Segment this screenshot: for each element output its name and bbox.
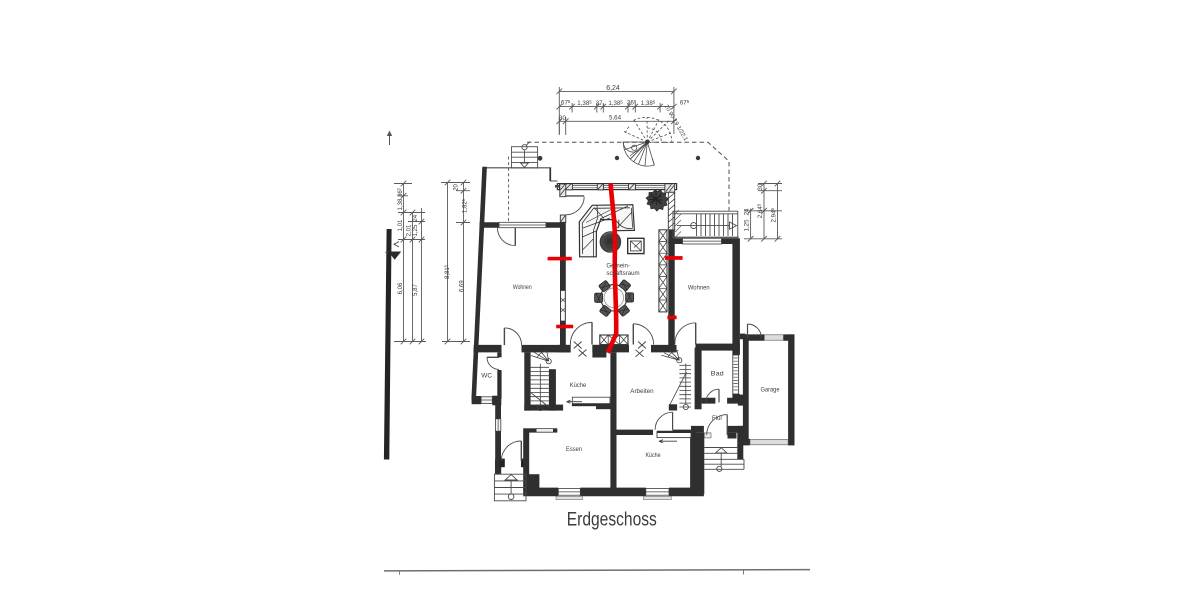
svg-text:1,25: 1,25 [413, 224, 419, 236]
svg-text:Flur: Flur [712, 415, 723, 422]
svg-text:WC: WC [481, 372, 492, 379]
svg-text:5,64: 5,64 [609, 115, 622, 122]
svg-text:24: 24 [413, 214, 419, 221]
svg-text:1,825: 1,825 [461, 198, 469, 213]
svg-text:schaftsraum: schaftsraum [606, 270, 639, 277]
svg-text:Bad: Bad [711, 371, 724, 378]
svg-text:Essen: Essen [566, 446, 582, 453]
svg-text:1,385: 1,385 [608, 100, 623, 108]
svg-text:675: 675 [561, 99, 571, 107]
svg-text:675: 675 [680, 99, 690, 107]
svg-text:20: 20 [454, 183, 460, 190]
svg-text:6,69: 6,69 [459, 280, 465, 292]
svg-text:37,: 37, [596, 100, 605, 107]
svg-text:Arbeiten: Arbeiten [630, 388, 654, 395]
svg-text:1,385: 1,385 [577, 100, 592, 108]
svg-text:Erdgeschoss: Erdgeschoss [567, 509, 657, 531]
svg-text:Küche: Küche [646, 452, 661, 459]
svg-text:30: 30 [559, 115, 566, 122]
svg-text:Gemein-: Gemein- [606, 262, 630, 269]
svg-text:Wohnen: Wohnen [513, 284, 532, 291]
svg-text:1,385: 1,385 [641, 100, 656, 108]
svg-text:8,815: 8,815 [444, 264, 452, 279]
svg-text:1,38: 1,38 [398, 198, 404, 210]
svg-text:Küche: Küche [570, 382, 587, 389]
svg-text:6,06: 6,06 [398, 282, 404, 294]
svg-text:1,25: 1,25 [743, 219, 750, 232]
svg-text:365: 365 [396, 187, 404, 197]
svg-text:2,01: 2,01 [407, 224, 413, 236]
svg-text:2,645: 2,645 [756, 203, 764, 218]
svg-text:6,24: 6,24 [606, 85, 620, 92]
svg-text:Garage: Garage [761, 386, 780, 393]
svg-text:24: 24 [743, 208, 750, 215]
svg-text:30: 30 [757, 183, 764, 190]
svg-text:20 90-19 1/22.1: 20 90-19 1/22.1 [663, 104, 689, 142]
svg-text:1,01: 1,01 [398, 219, 404, 231]
svg-text:Wohnen: Wohnen [688, 285, 710, 292]
svg-text:2,945: 2,945 [770, 207, 778, 222]
svg-text:5,87: 5,87 [413, 284, 419, 296]
